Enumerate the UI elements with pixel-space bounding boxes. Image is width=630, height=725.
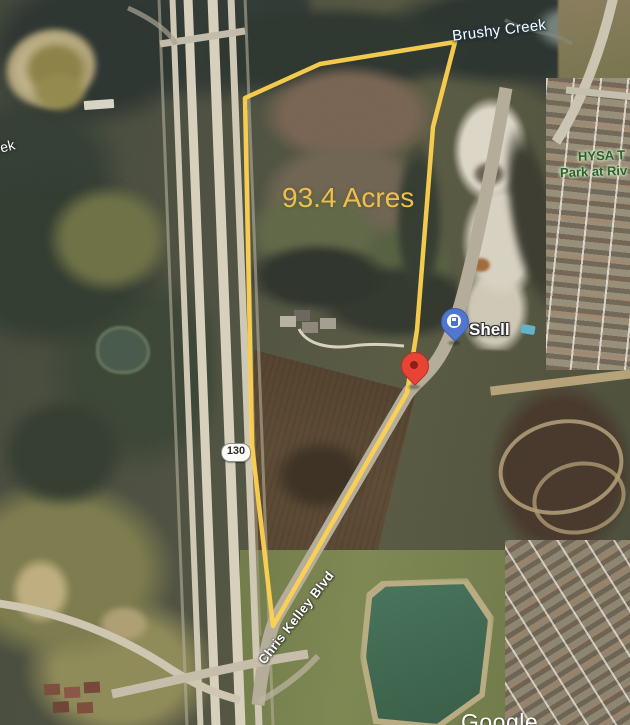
red-marker-dot [410, 361, 418, 369]
parcel-driveway [299, 329, 404, 347]
roads-and-boundary-overlay [0, 0, 630, 725]
acreage-label: 93.4 Acres [282, 182, 414, 214]
curved-road-bottomleft [0, 602, 240, 700]
google-watermark: Google [461, 709, 538, 725]
highway-130-shield: 130 [221, 443, 251, 462]
property-boundary [245, 42, 455, 626]
map-canvas[interactable]: Brushy Creek ek 93.4 Acres HYSA T Park a… [0, 0, 630, 725]
ramp-road-topleft [128, 8, 176, 44]
shell-station-pin[interactable] [441, 308, 467, 348]
dropped-pin[interactable] [401, 352, 427, 392]
shell-station-label[interactable]: Shell [469, 320, 510, 340]
road-topright [556, 0, 614, 142]
park-label-line2: Park at Riv [560, 163, 628, 180]
fuel-pump-icon [447, 314, 461, 328]
park-label-line1: HYSA T [578, 147, 626, 164]
